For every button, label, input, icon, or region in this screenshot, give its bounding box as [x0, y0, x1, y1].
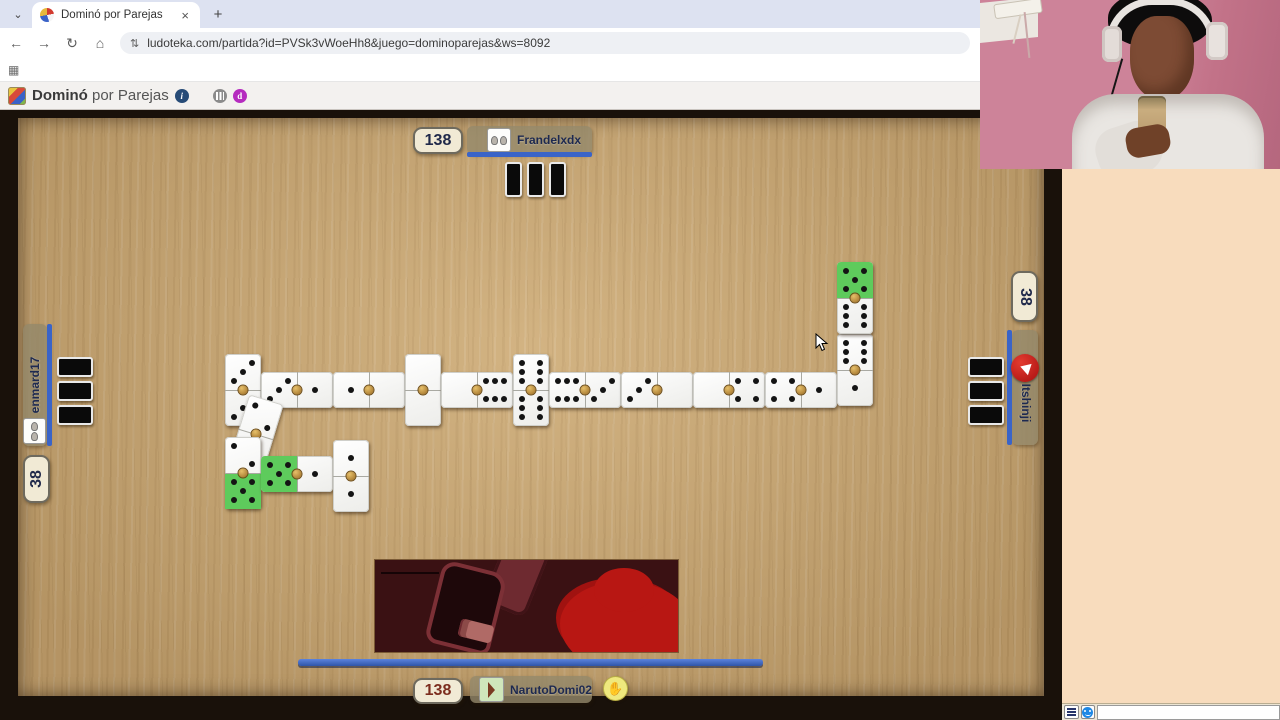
- mic-boom: [1111, 58, 1123, 95]
- domino-tile: [621, 372, 693, 408]
- score-badge-top: 138: [413, 127, 463, 154]
- domino-tile: [837, 262, 873, 334]
- player-name-bottom: NarutoDomi02: [510, 683, 592, 697]
- turn-bar-left: [47, 324, 52, 446]
- domino-tile: [513, 354, 549, 426]
- domino-half-1: [837, 371, 873, 407]
- domino-tile: [333, 372, 405, 408]
- domino-tile: [225, 437, 261, 509]
- webcam-video: [980, 0, 1280, 169]
- domino-tile: [837, 334, 873, 406]
- hidden-tiles-top: [505, 162, 566, 197]
- hidden-domino: [549, 162, 566, 197]
- hidden-domino: [505, 162, 522, 197]
- domino-half-1: [802, 372, 838, 408]
- emoji-button[interactable]: [1081, 705, 1096, 719]
- turn-timer-bar: [298, 659, 763, 666]
- hidden-tiles-left: [57, 357, 93, 425]
- hidden-domino: [57, 357, 93, 377]
- domino-half-6: [513, 391, 549, 427]
- domino-tile: [441, 372, 513, 408]
- domino-tile: [333, 440, 369, 512]
- domino-half-6: [478, 372, 514, 408]
- domino-tile: [765, 372, 837, 408]
- domino-half-1: [298, 456, 334, 492]
- turn-bar-right: [1007, 330, 1012, 445]
- avatar-bottom: [479, 677, 504, 702]
- pass-hand-button[interactable]: ✋: [603, 676, 628, 701]
- avatar-left: [23, 418, 46, 444]
- domino-half-1: [333, 477, 369, 513]
- score-badge-bottom: 138: [413, 678, 463, 704]
- domino-half-1: [298, 372, 334, 408]
- score-badge-left: 38: [23, 455, 50, 503]
- screen: ⌄ Dominó por Parejas × + ← → ↻ ⌂ ⇅ ludot…: [0, 0, 1280, 720]
- headphone-cup-right: [1206, 22, 1228, 60]
- player-name-left: enmard17: [28, 350, 42, 420]
- domino-half-5: [225, 474, 261, 510]
- hidden-domino: [527, 162, 544, 197]
- domino-half-0: [405, 391, 441, 427]
- domino-tile: [549, 372, 621, 408]
- hidden-domino: [968, 357, 1004, 377]
- disconnected-icon: [1011, 354, 1039, 382]
- turn-bar-top: [467, 152, 592, 157]
- domino-half-0: [658, 372, 694, 408]
- chat-bar: [1062, 703, 1280, 720]
- nameplate-bottom: NarutoDomi02: [470, 676, 592, 703]
- chat-menu-button[interactable]: [1064, 705, 1079, 719]
- hidden-domino: [968, 405, 1004, 425]
- domino-tile: [693, 372, 765, 408]
- domino-half-3: [586, 372, 622, 408]
- headphone-cup-left: [1102, 26, 1122, 62]
- nameplate-top: Frandelxdx: [467, 126, 592, 154]
- video-overlay: [375, 560, 678, 652]
- hidden-domino: [57, 405, 93, 425]
- domino-half-0: [370, 372, 406, 408]
- smiley-icon: [1082, 707, 1093, 718]
- nameplate-right: Itshinji: [1012, 330, 1038, 445]
- avatar-top: [487, 128, 511, 152]
- hidden-tiles-right: [968, 357, 1004, 425]
- stream-side-panel: [1062, 169, 1280, 703]
- domino-tile: [261, 456, 333, 492]
- domino-half-6: [837, 299, 873, 335]
- hidden-domino: [57, 381, 93, 401]
- domino-half-4: [730, 372, 766, 408]
- domino-tile: [405, 354, 441, 426]
- chat-input[interactable]: [1097, 705, 1280, 720]
- hidden-domino: [968, 381, 1004, 401]
- player-name-top: Frandelxdx: [517, 133, 581, 147]
- nameplate-left: enmard17: [23, 324, 47, 446]
- score-badge-right: 38: [1011, 271, 1038, 322]
